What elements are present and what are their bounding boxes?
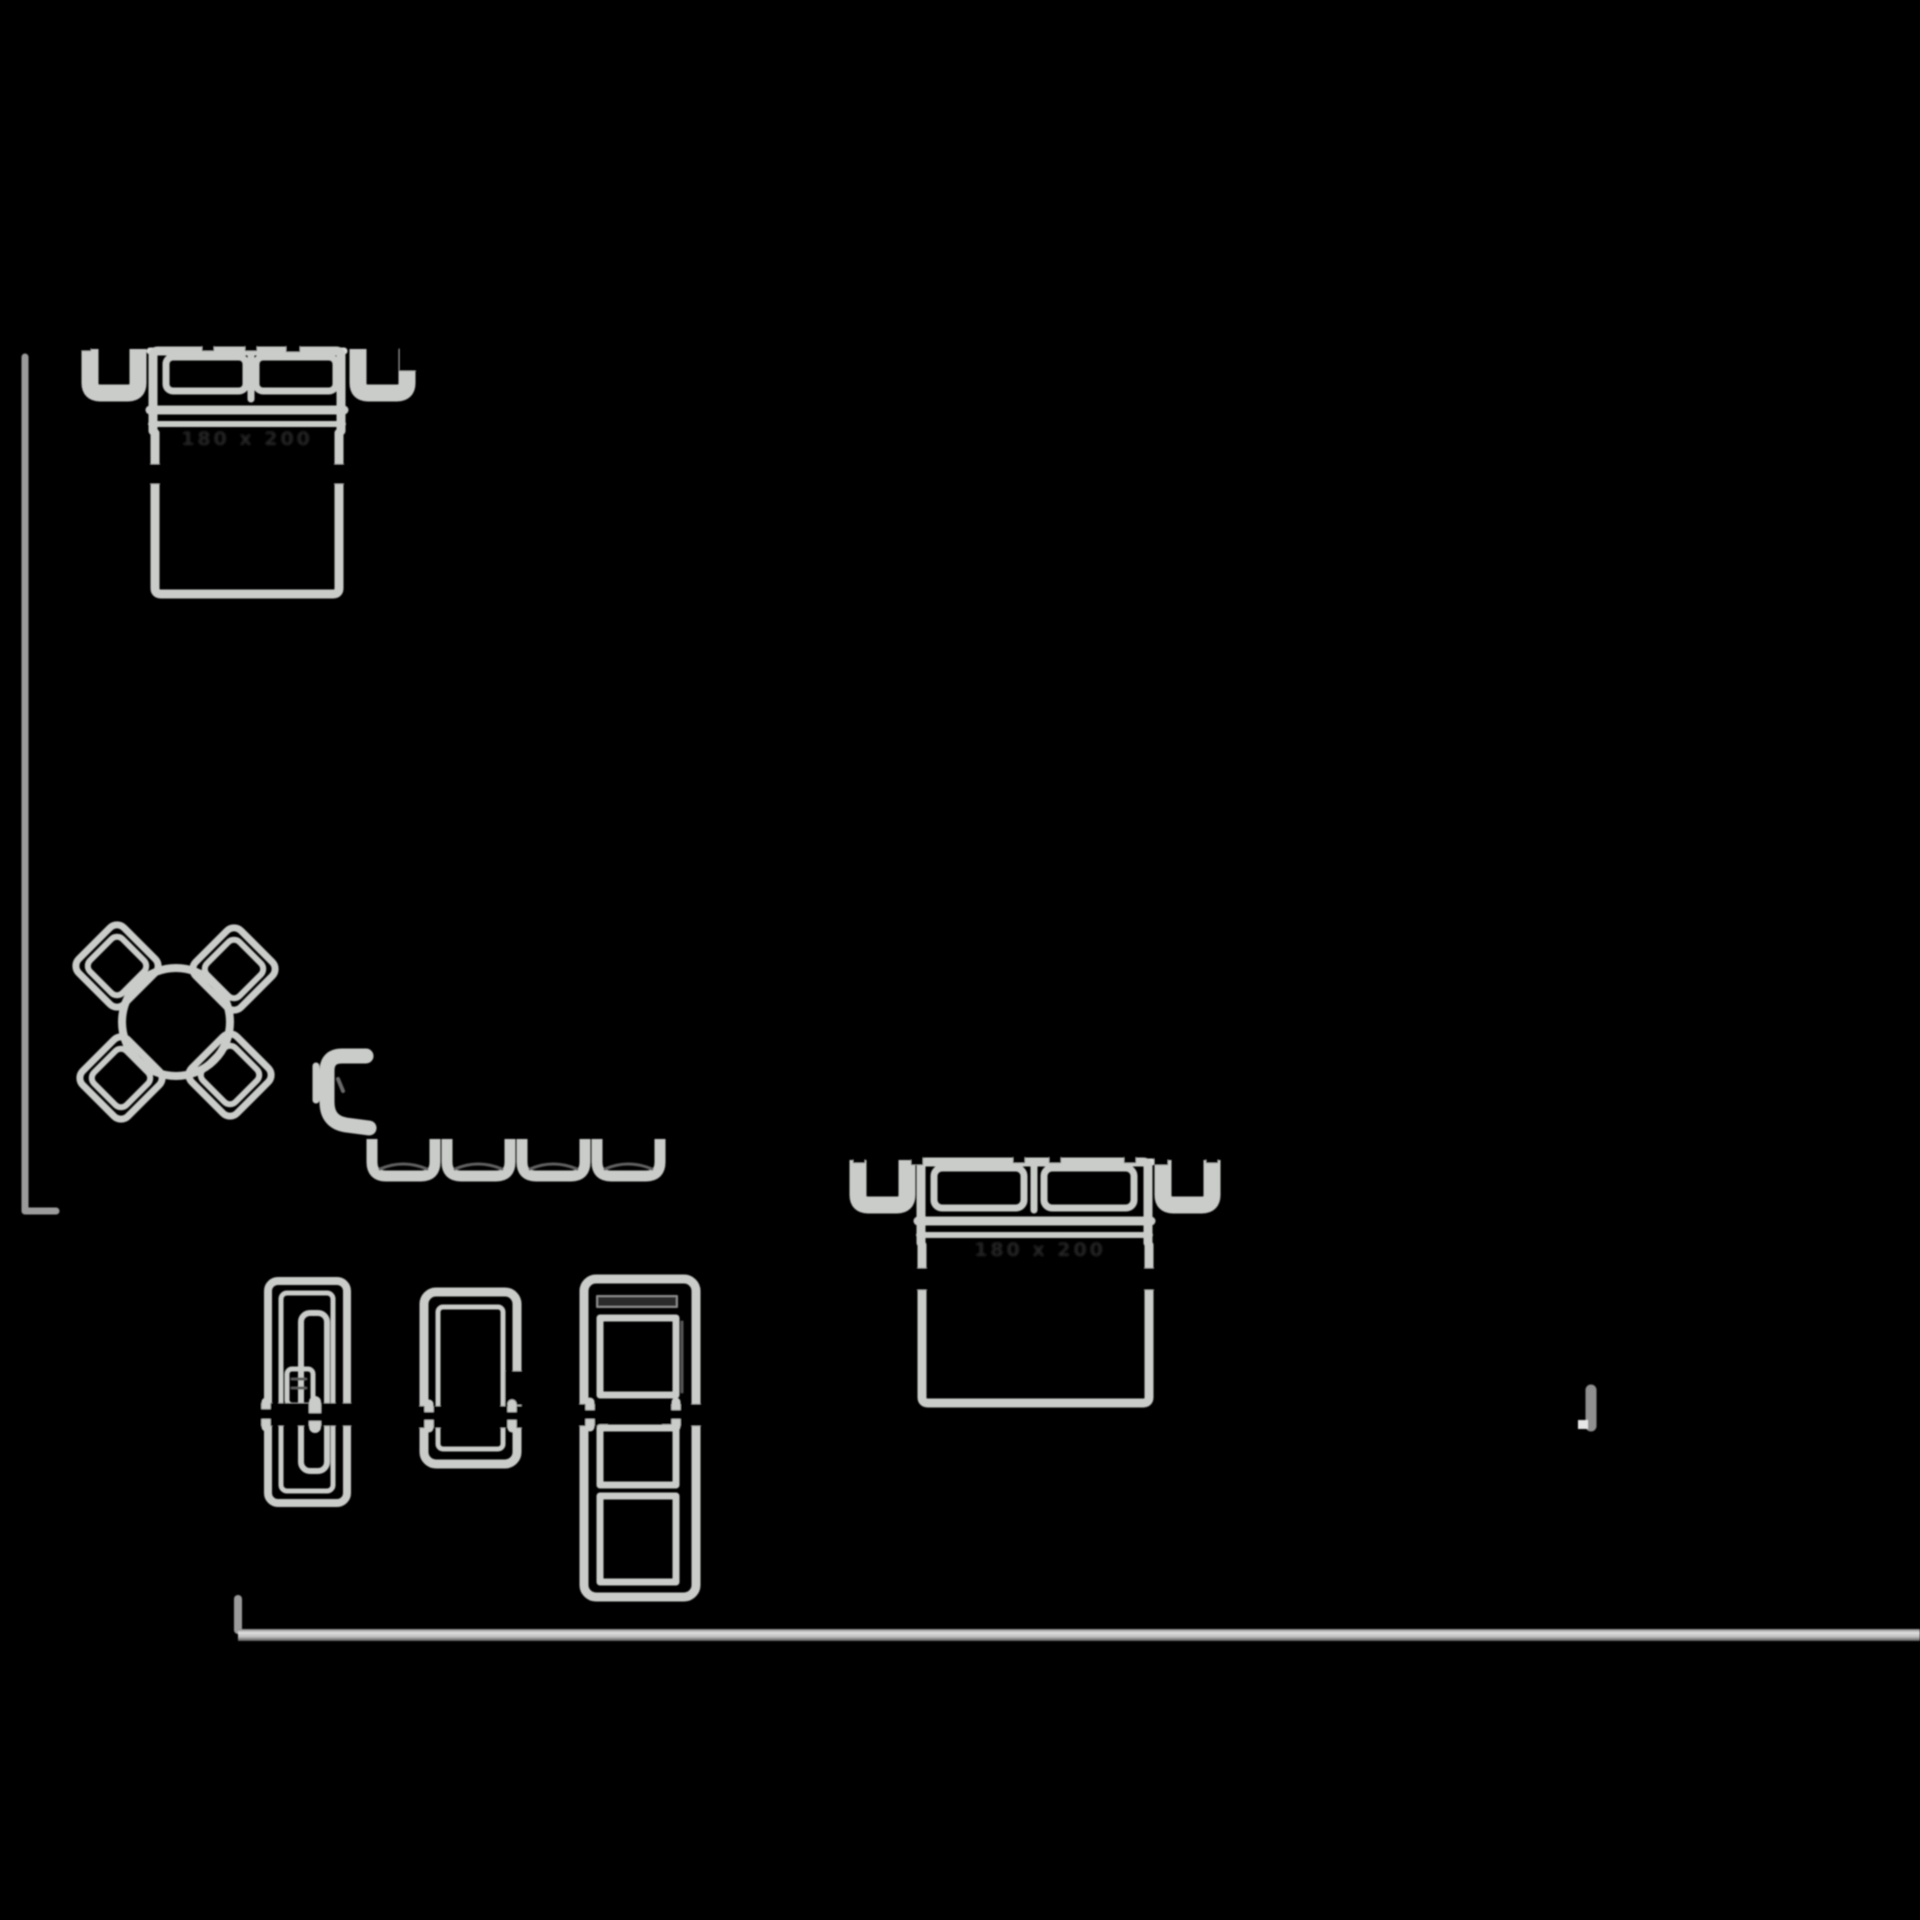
bed-size-label: 180 x 200 [181,428,313,450]
pinch-gap [308,1413,324,1421]
wall-overlap [1154,1153,1168,1165]
pinch-gap [506,1412,518,1420]
wall-overlap [1013,1153,1025,1163]
wall-overlap [911,1153,923,1165]
wall-overlap [330,464,348,484]
wall-overlap [1124,1153,1136,1163]
wall-overlap [853,1153,865,1163]
wall-overlap [146,464,164,484]
marker-foot [1578,1420,1588,1429]
pinch-gap [259,1409,273,1419]
wall-overlap [399,343,419,371]
wall-overlap [81,341,91,351]
pinch-gap [584,1410,596,1419]
wall-overlap [505,1371,527,1405]
pinch-gap [670,1410,682,1419]
dimension-line-bottom-shape [238,1629,1920,1641]
floorplan-canvas[interactable]: 180 x 200180 x 200 [0,0,1920,1920]
wall-overlap [202,341,214,351]
wall-overlap [913,1268,931,1290]
pinch-gap [423,1412,435,1420]
wall-overlap [112,341,126,352]
wall-overlap [1140,1268,1158,1290]
wall-overlap [662,1404,708,1426]
floorplan-stage: 180 x 200180 x 200 [0,0,1920,1920]
wall-overlap [1206,1153,1218,1163]
top-slot [597,1296,677,1307]
bed-size-label: 180 x 200 [974,1239,1106,1261]
wall-overlap [1049,1153,1061,1163]
wall-overlap [286,341,300,352]
wall-overlap [245,341,257,351]
